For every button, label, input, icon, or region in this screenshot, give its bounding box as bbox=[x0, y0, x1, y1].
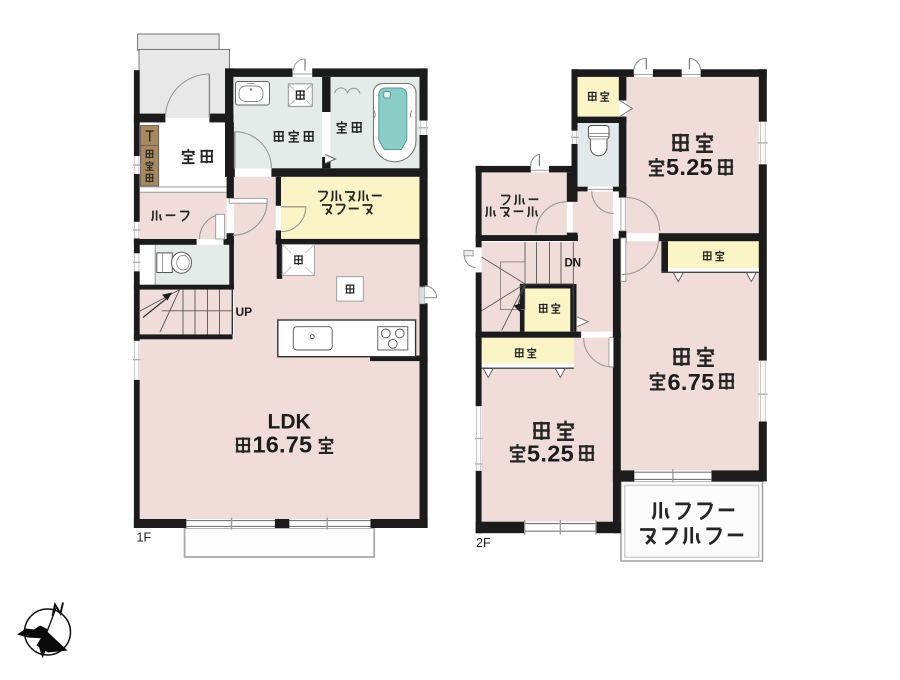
svg-text:5.25: 5.25 bbox=[527, 441, 574, 467]
svg-text:16.75: 16.75 bbox=[253, 432, 313, 458]
svg-text:2F: 2F bbox=[476, 536, 491, 550]
svg-text:5.25: 5.25 bbox=[666, 154, 713, 180]
svg-text:6.75: 6.75 bbox=[668, 369, 715, 395]
svg-text:1F: 1F bbox=[137, 531, 152, 545]
svg-text:LDK: LDK bbox=[268, 411, 311, 434]
svg-text:DN: DN bbox=[565, 258, 582, 270]
svg-text:UP: UP bbox=[236, 305, 253, 319]
